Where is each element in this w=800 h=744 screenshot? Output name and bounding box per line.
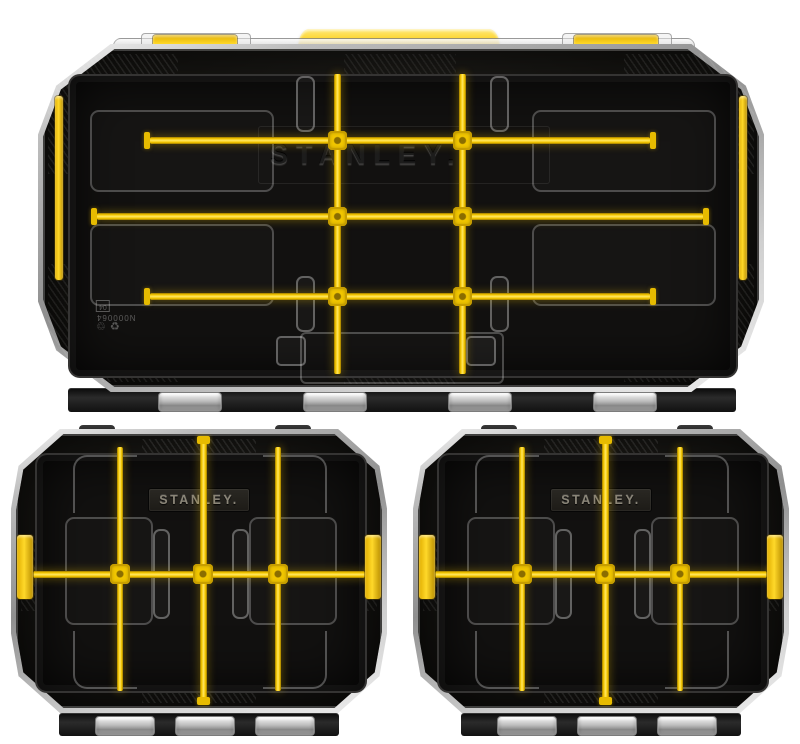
hinge-clip bbox=[497, 716, 557, 736]
large-organizer: STANLEY. 04 N000064 ♲♻ bbox=[38, 14, 764, 414]
side-latch-right-icon bbox=[365, 535, 381, 599]
mold-code: N000064 bbox=[96, 312, 135, 322]
divider-cross-connector bbox=[110, 564, 130, 584]
recycle-icon: ♻ bbox=[110, 321, 124, 333]
divider-cross-connector bbox=[670, 564, 690, 584]
side-latch-left-icon bbox=[55, 96, 63, 280]
lid-slot bbox=[296, 76, 315, 132]
corner-hook bbox=[665, 455, 729, 513]
mold-box-label: 04 bbox=[96, 300, 110, 312]
corner-hook bbox=[475, 631, 539, 689]
recycle-icon: ♲ bbox=[96, 321, 110, 333]
divider-cross-connector bbox=[268, 564, 288, 584]
hinge-bracket bbox=[276, 336, 306, 366]
divider-cross-connector bbox=[453, 287, 472, 306]
hinge-clip bbox=[95, 716, 155, 736]
mold-markings: 04 N000064 ♲♻ bbox=[96, 300, 196, 333]
corner-hook bbox=[263, 631, 327, 689]
corner-hook bbox=[263, 455, 327, 513]
hinge-clip bbox=[593, 392, 657, 412]
divider-cross-connector bbox=[328, 131, 347, 150]
divider-cross-connector bbox=[453, 207, 472, 226]
stanley-badge: STANLEY. bbox=[551, 489, 651, 511]
lid-slot bbox=[490, 276, 509, 332]
corner-hook bbox=[73, 631, 137, 689]
small-organizer-right: STANLEY. bbox=[409, 425, 793, 740]
divider-horizontal-1 bbox=[150, 137, 650, 144]
divider-cross-connector bbox=[512, 564, 532, 584]
hinge-clip bbox=[448, 392, 512, 412]
lid-slot bbox=[296, 276, 315, 332]
hinge-clip bbox=[303, 392, 367, 412]
hinge-clip bbox=[577, 716, 637, 736]
divider-endcap bbox=[599, 697, 612, 705]
corner-hook bbox=[665, 631, 729, 689]
hinge-clip bbox=[657, 716, 717, 736]
corner-hook bbox=[73, 455, 137, 513]
divider-endcap bbox=[144, 132, 150, 149]
divider-cross-connector bbox=[328, 287, 347, 306]
hinge-bracket bbox=[466, 336, 496, 366]
side-latch-right-icon bbox=[767, 535, 783, 599]
divider-cross-connector bbox=[328, 207, 347, 226]
small-organizer-left: STANLEY. bbox=[7, 425, 391, 740]
side-latch-left-icon bbox=[419, 535, 435, 599]
divider-cross-connector bbox=[453, 131, 472, 150]
side-latch-left-icon bbox=[17, 535, 33, 599]
divider-horizontal-3 bbox=[150, 293, 650, 300]
corner-hook bbox=[475, 455, 539, 513]
divider-endcap bbox=[650, 132, 656, 149]
lid-slot bbox=[490, 76, 509, 132]
divider-cross-connector bbox=[595, 564, 615, 584]
divider-endcap bbox=[703, 208, 709, 225]
stanley-badge-text: STANLEY. bbox=[159, 493, 239, 507]
side-latch-right-icon bbox=[739, 96, 747, 280]
stanley-badge-text: STANLEY. bbox=[561, 493, 641, 507]
divider-endcap bbox=[650, 288, 656, 305]
divider-endcap bbox=[197, 697, 210, 705]
hinge-clip bbox=[158, 392, 222, 412]
hinge-clip bbox=[175, 716, 235, 736]
compartment-wall bbox=[90, 110, 274, 192]
divider-endcap bbox=[91, 208, 97, 225]
divider-horizontal-2 bbox=[97, 213, 703, 220]
divider-endcap bbox=[599, 436, 612, 444]
divider-cross-connector bbox=[193, 564, 213, 584]
compartment-wall bbox=[532, 110, 716, 192]
hinge-clip bbox=[255, 716, 315, 736]
divider-endcap bbox=[197, 436, 210, 444]
stanley-badge: STANLEY. bbox=[149, 489, 249, 511]
